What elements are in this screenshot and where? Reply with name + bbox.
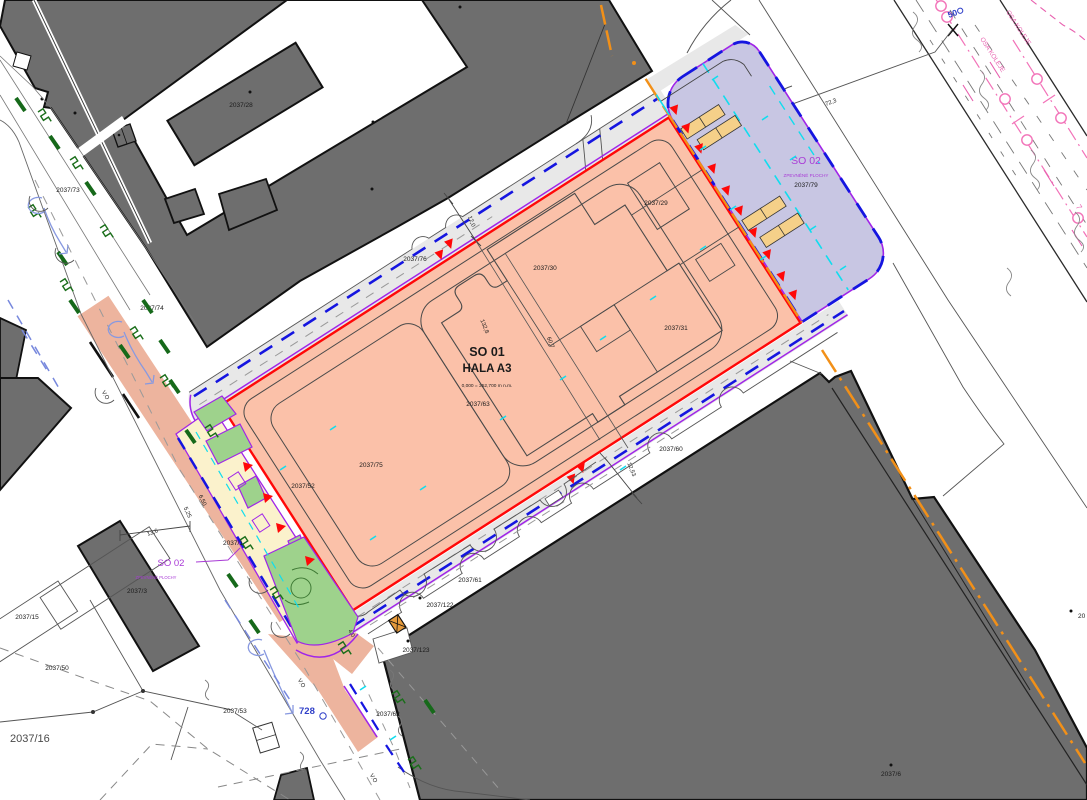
- svg-text:2037/63: 2037/63: [466, 401, 490, 408]
- svg-text:2037/62: 2037/62: [376, 711, 400, 718]
- svg-text:2037/122: 2037/122: [426, 602, 453, 609]
- svg-text:2037/31: 2037/31: [664, 325, 688, 332]
- svg-text:SO 01: SO 01: [469, 345, 504, 359]
- svg-text:2037/30: 2037/30: [533, 265, 557, 272]
- svg-text:2037/28: 2037/28: [229, 102, 253, 109]
- svg-text:2037/73: 2037/73: [56, 187, 80, 194]
- svg-text:2037/79: 2037/79: [794, 182, 818, 189]
- svg-text:2037/61: 2037/61: [458, 577, 482, 584]
- svg-text:2037/15: 2037/15: [15, 614, 39, 621]
- svg-text:2037/50: 2037/50: [45, 665, 69, 672]
- svg-text:2037/123: 2037/123: [402, 647, 429, 654]
- svg-text:2037/53: 2037/53: [223, 708, 247, 715]
- svg-text:ZPEVNĚNÉ PLOCHY: ZPEVNĚNÉ PLOCHY: [784, 171, 829, 178]
- svg-text:2037/3: 2037/3: [127, 588, 147, 595]
- svg-text:2037/60: 2037/60: [659, 446, 683, 453]
- svg-text:20: 20: [1078, 613, 1086, 620]
- svg-text:ZPEVNĚNÉ PLOCHY: ZPEVNĚNÉ PLOCHY: [136, 575, 177, 580]
- svg-text:2037/76: 2037/76: [403, 256, 427, 263]
- svg-text:2037/6: 2037/6: [881, 771, 901, 778]
- svg-text:SO 02: SO 02: [158, 558, 185, 569]
- svg-text:2037/1: 2037/1: [223, 540, 243, 547]
- svg-text:2037/52: 2037/52: [291, 483, 315, 490]
- svg-text:2037/29: 2037/29: [644, 200, 668, 207]
- svg-text:HALA A3: HALA A3: [463, 363, 512, 375]
- svg-text:0,000 = 252,700 m n.m.: 0,000 = 252,700 m n.m.: [462, 383, 513, 389]
- svg-text:2037/16: 2037/16: [10, 733, 50, 745]
- svg-text:728: 728: [299, 706, 315, 717]
- svg-text:2037/75: 2037/75: [359, 462, 383, 469]
